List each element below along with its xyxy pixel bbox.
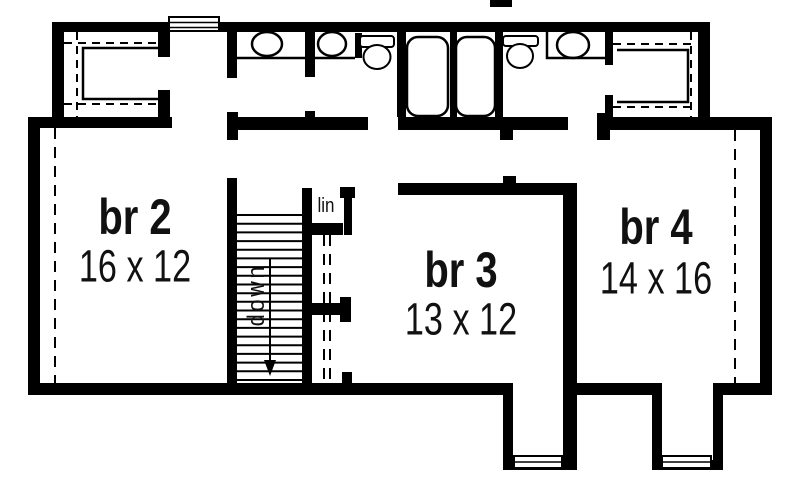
- chimney-mark: [490, 0, 512, 7]
- closet-br4-shelf: [617, 50, 688, 102]
- linen-closet-label: lin: [317, 196, 334, 216]
- top-window: [169, 17, 219, 31]
- sink-3: [557, 32, 589, 58]
- room-size-br2: 16 x 12: [79, 244, 191, 289]
- bath-fixtures: [237, 32, 605, 116]
- room-label-br3: br 3: [424, 245, 497, 295]
- sink-1: [252, 32, 282, 56]
- bathtub-1: [407, 37, 448, 116]
- sink-2: [318, 32, 346, 56]
- toilet-2-bowl: [507, 44, 533, 68]
- toilet-1-bowl: [364, 45, 391, 69]
- room-size-br4: 14 x 16: [600, 256, 712, 301]
- room-label-br4: br 4: [619, 202, 692, 252]
- dormer-window-left: [514, 456, 562, 468]
- room-label-br2: br 2: [98, 192, 171, 242]
- bathtub-2: [456, 37, 495, 116]
- dormer-window-right: [662, 456, 711, 468]
- room-size-br3: 13 x 12: [405, 297, 517, 342]
- closet-br2-shelf: [83, 48, 160, 99]
- floor-plan: br 2 16 x 12 br 3 13 x 12 br 4 14 x 16 l…: [0, 0, 800, 495]
- stairs-down-label: down: [245, 264, 269, 326]
